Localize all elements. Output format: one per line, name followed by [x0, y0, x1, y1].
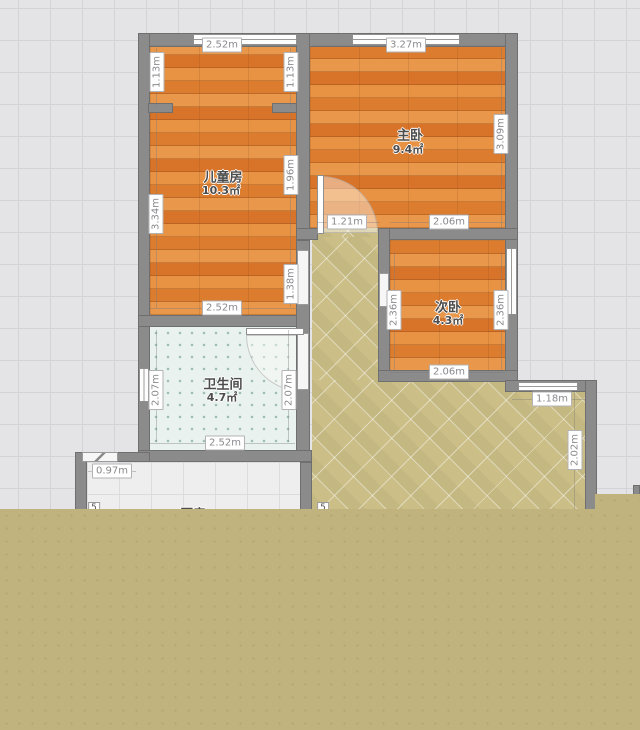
dimension-label[interactable]: 2.02m	[568, 430, 583, 470]
dimension-label[interactable]: 3.34m	[149, 194, 164, 234]
wall[interactable]	[296, 228, 318, 240]
door-leaf-bath[interactable]	[246, 328, 304, 335]
dimension-label[interactable]: 2.52m	[202, 301, 242, 316]
wall-stub[interactable]	[148, 103, 173, 113]
room-area-children: 10.3㎡	[202, 182, 240, 198]
window[interactable]	[139, 368, 149, 402]
door-opening-kitchen[interactable]	[82, 452, 118, 462]
door-opening-children[interactable]	[297, 250, 309, 305]
dimension-label[interactable]: 1.96m	[284, 155, 299, 195]
room-area-bath: 4.7㎡	[207, 389, 238, 405]
dimension-label[interactable]: 1.18m	[532, 392, 572, 407]
room-area-second: 4.3㎡	[433, 312, 464, 328]
bottom-overlay	[0, 509, 640, 730]
dimension-label[interactable]: 2.52m	[205, 436, 245, 451]
dimension-label[interactable]: 3.09m	[494, 114, 509, 154]
window[interactable]	[518, 382, 578, 391]
wall-stub[interactable]	[272, 103, 297, 113]
dimension-label[interactable]: 2.07m	[149, 370, 164, 410]
wall[interactable]	[138, 315, 310, 327]
wall[interactable]	[585, 380, 597, 512]
dimension-label[interactable]: 1.38m	[284, 264, 299, 304]
dimension-label[interactable]: 2.52m	[202, 38, 242, 53]
dimension-label[interactable]: 1.13m	[150, 52, 165, 92]
dimension-label[interactable]: 0.97m	[92, 464, 132, 479]
wall[interactable]	[505, 33, 518, 392]
dimension-label[interactable]: 1.21m	[327, 215, 367, 230]
wall[interactable]	[378, 228, 518, 240]
room-area-master: 9.4㎡	[393, 141, 424, 157]
dimension-label[interactable]: 2.06m	[429, 365, 469, 380]
dimension-label[interactable]: 3.27m	[386, 38, 426, 53]
dimension-label[interactable]: 2.06m	[429, 215, 469, 230]
dimension-label[interactable]: 2.07m	[282, 370, 297, 410]
dimension-label[interactable]: 2.36m	[494, 290, 509, 330]
door-leaf-master[interactable]	[317, 175, 324, 234]
dimension-label[interactable]: 2.36m	[387, 290, 402, 330]
floorplan-canvas: 儿童房 10.3㎡ 主卧 9.4㎡ 次卧 4.3㎡ 卫生间 4.7㎡ 厨房 2.…	[0, 0, 640, 730]
wall[interactable]	[300, 462, 312, 512]
dimension-label[interactable]: 1.13m	[284, 52, 299, 92]
door-opening-bath[interactable]	[297, 333, 309, 390]
wall[interactable]	[138, 450, 312, 462]
